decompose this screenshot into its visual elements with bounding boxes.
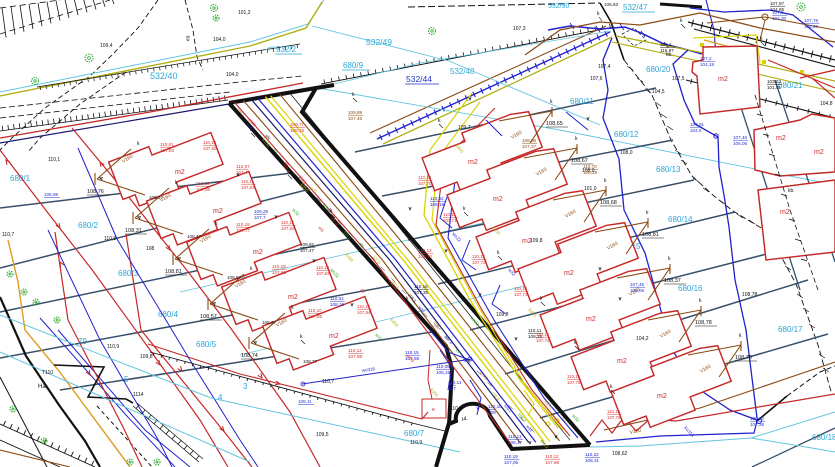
svg-text:109,28: 109,28 (254, 209, 268, 214)
svg-text:107,72: 107,72 (418, 254, 432, 259)
svg-text:109,7: 109,7 (458, 125, 471, 131)
svg-text:107: 107 (448, 386, 456, 391)
svg-text:110,14: 110,14 (357, 304, 371, 309)
svg-text:107,2: 107,2 (700, 56, 712, 61)
svg-text:110,9: 110,9 (410, 440, 422, 446)
svg-text:Ha: Ha (38, 384, 46, 390)
svg-text:680/5: 680/5 (196, 340, 217, 349)
svg-text:110,13: 110,13 (514, 286, 528, 291)
svg-text:107,72: 107,72 (472, 260, 486, 265)
svg-text:105,06: 105,06 (630, 288, 644, 293)
svg-text:109,8: 109,8 (496, 312, 509, 318)
svg-text:108,17: 108,17 (508, 440, 522, 445)
svg-text:104,30: 104,30 (772, 16, 786, 21)
svg-text:110,12: 110,12 (281, 220, 295, 225)
svg-text:101,01: 101,01 (767, 85, 781, 90)
svg-text:108,37: 108,37 (664, 278, 681, 284)
svg-text:110,02: 110,02 (330, 296, 344, 301)
svg-text:kb.: kb. (788, 188, 795, 194)
svg-text:109,89: 109,89 (348, 110, 362, 115)
svg-text:107,35: 107,35 (414, 290, 428, 295)
svg-text:532/90: 532/90 (548, 3, 570, 10)
svg-text:107,81: 107,81 (272, 270, 286, 275)
svg-text:4: 4 (218, 393, 223, 402)
svg-text:680/11: 680/11 (570, 97, 594, 106)
svg-text:108,31: 108,31 (125, 228, 142, 234)
svg-text:110,02: 110,02 (430, 196, 444, 201)
svg-text:108,19: 108,19 (430, 202, 444, 207)
svg-text:110,05: 110,05 (436, 364, 450, 369)
svg-text:108,37: 108,37 (149, 195, 163, 200)
svg-text:m2: m2 (329, 333, 339, 340)
svg-text:108,74: 108,74 (241, 353, 258, 359)
svg-text:108,57: 108,57 (200, 314, 217, 320)
svg-text:680/16: 680/16 (678, 284, 703, 293)
svg-text:107,5: 107,5 (672, 76, 685, 82)
svg-text:110,9: 110,9 (107, 344, 119, 350)
svg-text:680/12: 680/12 (614, 130, 639, 139)
svg-text:m2: m2 (564, 270, 574, 277)
svg-text:108,65: 108,65 (546, 121, 563, 127)
svg-text:109,8: 109,8 (140, 354, 153, 360)
svg-text:105,98: 105,98 (44, 192, 58, 197)
svg-text:109,82: 109,82 (300, 242, 314, 247)
svg-text:108,62: 108,62 (612, 451, 628, 457)
svg-text:108,0: 108,0 (620, 150, 633, 156)
svg-text:107,38: 107,38 (750, 422, 764, 427)
svg-text:109,77: 109,77 (290, 122, 304, 127)
svg-text:107,6: 107,6 (590, 76, 603, 82)
svg-text:532/2: 532/2 (276, 45, 297, 54)
svg-text:108,78: 108,78 (735, 355, 752, 361)
svg-text:680/1: 680/1 (10, 174, 31, 183)
svg-text:m2: m2 (586, 316, 596, 323)
svg-text:108,78: 108,78 (742, 292, 758, 298)
svg-text:107,75: 107,75 (567, 380, 581, 385)
svg-text:110,18: 110,18 (272, 264, 286, 269)
svg-text:108,81: 108,81 (165, 269, 182, 275)
svg-text:m2: m2 (175, 169, 185, 176)
svg-text:104,5: 104,5 (652, 89, 665, 95)
svg-text:m2: m2 (657, 393, 667, 400)
svg-text:115,97: 115,97 (660, 48, 674, 53)
svg-text:108: 108 (146, 246, 155, 252)
svg-text:107,71: 107,71 (443, 218, 457, 223)
svg-text:107,82: 107,82 (281, 226, 295, 231)
svg-text:110,07: 110,07 (236, 164, 250, 169)
svg-text:108,31: 108,31 (585, 458, 599, 463)
svg-text:108,68: 108,68 (600, 200, 617, 206)
svg-text:107,80: 107,80 (203, 146, 217, 151)
svg-text:m2: m2 (780, 209, 790, 216)
svg-text:108,76: 108,76 (87, 189, 104, 195)
svg-text:110,10: 110,10 (203, 140, 217, 145)
svg-text:107,3: 107,3 (513, 26, 526, 32)
svg-text:108: 108 (488, 410, 496, 415)
svg-text:107,84: 107,84 (357, 310, 371, 315)
svg-text:110,11: 110,11 (508, 434, 522, 439)
svg-text:104,0: 104,0 (226, 72, 239, 78)
svg-text:110,8: 110,8 (104, 236, 116, 242)
svg-text:m2: m2 (718, 76, 728, 83)
svg-text:107,46: 107,46 (348, 116, 362, 121)
svg-text:107,85: 107,85 (308, 314, 322, 319)
svg-text:107,77: 107,77 (236, 228, 250, 233)
svg-text:m2: m2 (253, 249, 263, 256)
svg-text:m2: m2 (617, 358, 627, 365)
svg-text:110,12: 110,12 (472, 254, 486, 259)
svg-text:532/48: 532/48 (450, 67, 475, 76)
svg-text:108,28: 108,28 (583, 170, 597, 175)
svg-text:680/14: 680/14 (668, 215, 693, 224)
svg-text:110,1: 110,1 (48, 157, 60, 163)
svg-text:110,11: 110,11 (241, 179, 254, 184)
svg-text:104,18: 104,18 (700, 62, 714, 67)
svg-text:108,57: 108,57 (227, 275, 241, 280)
svg-text:108,47: 108,47 (187, 234, 201, 239)
svg-text:1114: 1114 (133, 392, 144, 398)
svg-text:m2: m2 (288, 294, 298, 301)
svg-text:105,19: 105,19 (436, 370, 450, 375)
svg-text:110,10: 110,10 (418, 175, 432, 180)
svg-text:680/21: 680/21 (778, 81, 803, 90)
svg-text:110,01: 110,01 (160, 142, 174, 147)
svg-text:109,5: 109,5 (316, 432, 329, 438)
svg-text:680/7: 680/7 (404, 429, 425, 438)
svg-text:µL: µL (462, 416, 468, 422)
svg-text:110,12: 110,12 (418, 248, 432, 253)
svg-text:110,13: 110,13 (316, 265, 330, 270)
svg-text:109,8: 109,8 (530, 238, 543, 244)
svg-text:110,15: 110,15 (414, 284, 428, 289)
svg-text:109,70: 109,70 (750, 416, 764, 421)
svg-text:m2: m2 (493, 196, 503, 203)
svg-text:m2: m2 (213, 208, 223, 215)
svg-text:105,83: 105,83 (604, 2, 618, 7)
svg-text:680/9: 680/9 (343, 61, 364, 70)
svg-text:107,91: 107,91 (690, 122, 704, 127)
svg-text:107,81: 107,81 (241, 185, 255, 190)
svg-text:107,47: 107,47 (300, 248, 314, 253)
svg-text:532/40: 532/40 (150, 71, 178, 81)
svg-text:109,4: 109,4 (100, 43, 113, 49)
svg-text:107,97: 107,97 (770, 1, 784, 6)
svg-text:110,16: 110,16 (607, 409, 621, 414)
svg-text:108,19: 108,19 (330, 302, 344, 307)
svg-text:107,46: 107,46 (630, 282, 644, 287)
svg-text:680/17: 680/17 (778, 325, 803, 334)
svg-text:108,11: 108,11 (298, 399, 312, 404)
svg-text:680/20: 680/20 (646, 65, 671, 74)
svg-text:107,06: 107,06 (504, 460, 518, 465)
svg-text:110,7: 110,7 (322, 379, 334, 385)
svg-text:532/44: 532/44 (406, 74, 432, 84)
svg-text:107,83: 107,83 (160, 148, 174, 153)
svg-text:104,60: 104,60 (804, 24, 818, 29)
svg-text:104,0: 104,0 (213, 37, 226, 43)
svg-text:107,4: 107,4 (598, 64, 611, 70)
svg-text:m2: m2 (814, 149, 824, 156)
svg-text:110,19: 110,19 (504, 454, 518, 459)
svg-text:79: 79 (78, 337, 87, 346)
svg-text:110,12: 110,12 (545, 454, 559, 459)
svg-text:108,15: 108,15 (290, 128, 304, 133)
svg-text:101,0: 101,0 (584, 186, 597, 192)
svg-text:107,74: 107,74 (536, 338, 550, 343)
svg-text:e: e (432, 407, 435, 413)
svg-text:110,12: 110,12 (348, 348, 362, 353)
svg-text:107,73: 107,73 (514, 292, 528, 297)
svg-text:110,7: 110,7 (2, 232, 14, 238)
svg-text:107,83: 107,83 (316, 271, 330, 276)
svg-text:107,4: 107,4 (236, 170, 248, 175)
svg-text:108,67: 108,67 (262, 320, 276, 325)
svg-text:108,78: 108,78 (695, 320, 712, 326)
svg-text:107,46: 107,46 (733, 135, 747, 140)
svg-text:108,95: 108,95 (522, 138, 536, 143)
svg-text:680/2: 680/2 (78, 221, 99, 230)
svg-text:107,7: 107,7 (254, 215, 266, 220)
svg-text:108,81: 108,81 (642, 232, 659, 238)
svg-text:110,10: 110,10 (308, 308, 322, 313)
svg-text:680/18: 680/18 (812, 433, 835, 442)
svg-text:108,77: 108,77 (303, 359, 317, 364)
svg-text:104,8: 104,8 (820, 101, 833, 107)
svg-text:107,9: 107,9 (772, 10, 784, 15)
svg-text:680/13: 680/13 (656, 165, 681, 174)
svg-text:107,98: 107,98 (545, 460, 559, 465)
svg-text:532/47: 532/47 (623, 3, 648, 12)
svg-text:110,10: 110,10 (488, 404, 502, 409)
svg-text:104,6: 104,6 (690, 128, 702, 133)
svg-text:105,06: 105,06 (733, 141, 747, 146)
svg-text:110,19: 110,19 (236, 222, 250, 227)
svg-text:107,98: 107,98 (348, 354, 362, 359)
svg-text:107,37: 107,37 (522, 144, 536, 149)
svg-text:110,70: 110,70 (583, 164, 597, 169)
svg-text:T110: T110 (42, 370, 53, 376)
svg-text:110,15: 110,15 (567, 374, 581, 379)
svg-text:108,1: 108,1 (660, 42, 672, 47)
svg-text:110,11: 110,11 (443, 212, 456, 217)
svg-text:107,76: 107,76 (804, 18, 818, 23)
svg-text:m2: m2 (776, 135, 786, 142)
svg-text:107,98: 107,98 (196, 187, 210, 192)
svg-text:110,7: 110,7 (450, 406, 462, 412)
svg-text:m2: m2 (468, 159, 478, 166)
svg-text:110,12: 110,12 (196, 181, 210, 186)
svg-text:101,2: 101,2 (238, 10, 251, 16)
svg-text:107,76: 107,76 (607, 415, 621, 420)
svg-text:104,2: 104,2 (636, 336, 649, 342)
svg-text:5: 5 (124, 375, 129, 384)
svg-text:103,53: 103,53 (767, 79, 781, 84)
svg-text:110,14: 110,14 (536, 332, 550, 337)
svg-text:107,70: 107,70 (418, 181, 432, 186)
svg-text:3: 3 (243, 382, 248, 391)
svg-text:110,22: 110,22 (585, 452, 599, 457)
